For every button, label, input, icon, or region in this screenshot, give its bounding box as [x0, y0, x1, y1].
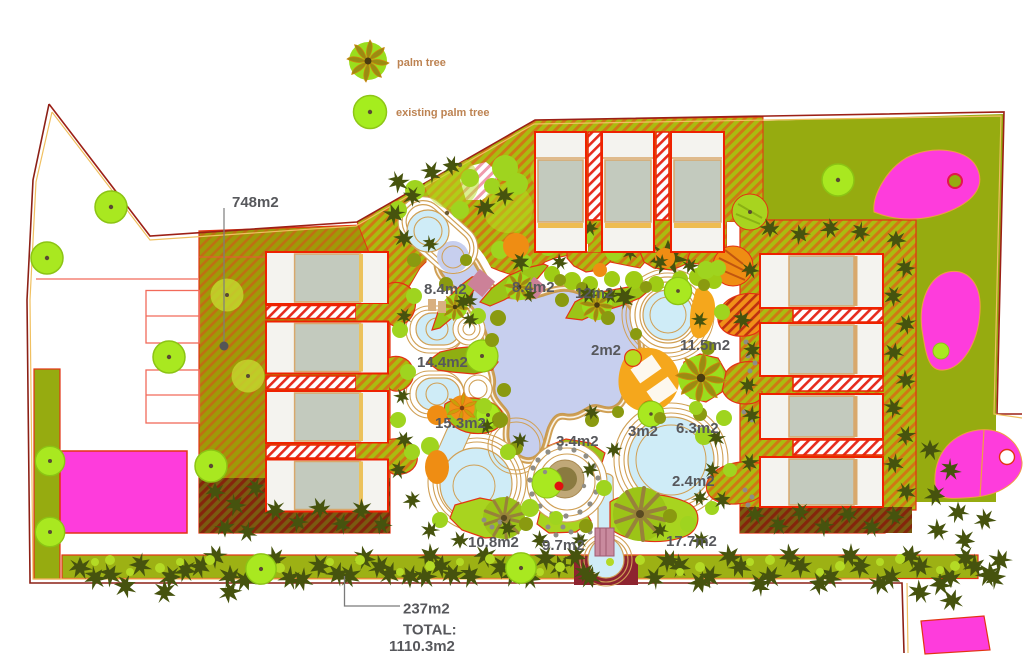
- svg-text:TOTAL:: TOTAL:: [403, 622, 457, 639]
- svg-text:2.4m2: 2.4m2: [672, 473, 715, 490]
- svg-text:3.4m2: 3.4m2: [556, 433, 599, 450]
- svg-text:748m2: 748m2: [232, 194, 279, 211]
- svg-text:17.7m2: 17.7m2: [666, 533, 717, 550]
- svg-text:237m2: 237m2: [403, 601, 450, 618]
- svg-text:palm tree: palm tree: [397, 57, 446, 69]
- svg-text:9.7m2: 9.7m2: [542, 537, 585, 554]
- svg-text:10.8m2: 10.8m2: [468, 534, 519, 551]
- svg-text:11.5m2: 11.5m2: [680, 337, 730, 354]
- svg-text:2m2: 2m2: [591, 342, 621, 359]
- svg-text:3m2: 3m2: [628, 423, 658, 440]
- svg-text:8.4m2: 8.4m2: [424, 281, 467, 298]
- svg-text:1110.3m2: 1110.3m2: [389, 638, 455, 655]
- svg-text:12m2: 12m2: [575, 285, 613, 302]
- svg-text:14.4m2: 14.4m2: [417, 354, 468, 371]
- svg-text:existing palm tree: existing palm tree: [396, 107, 490, 119]
- svg-text:8.4m2: 8.4m2: [512, 279, 555, 296]
- svg-text:6.3m2: 6.3m2: [676, 420, 719, 437]
- svg-text:15.3m2: 15.3m2: [435, 415, 486, 432]
